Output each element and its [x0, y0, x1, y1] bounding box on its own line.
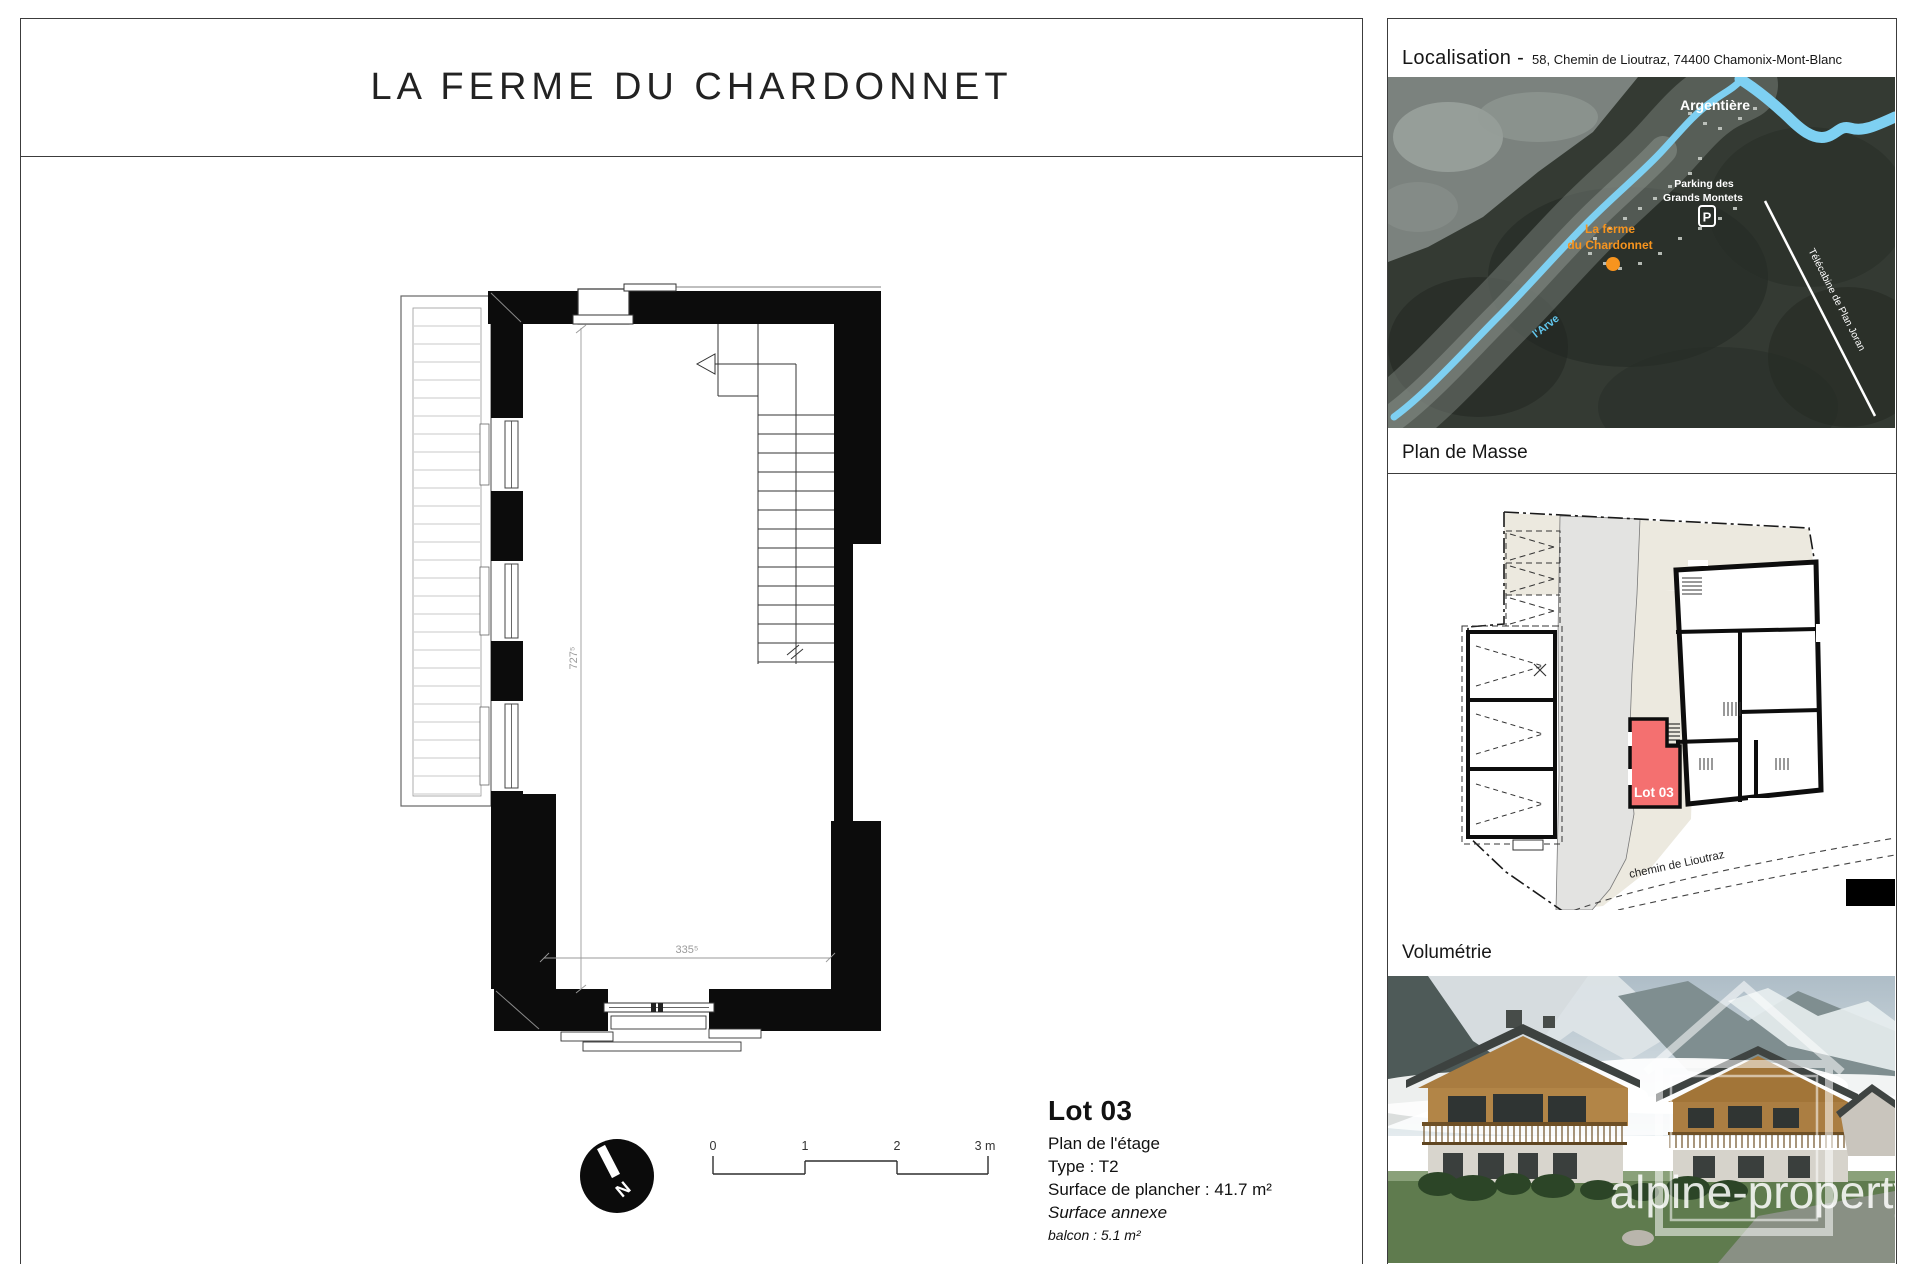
side-column: Localisation - 58, Chemin de Lioutraz, 7… — [1387, 18, 1897, 1264]
north-arrow: N — [578, 1136, 658, 1216]
lot-annexe: Surface annexe — [1048, 1201, 1272, 1224]
lot-info-block: Lot 03 Plan de l'étage Type : T2 Surface… — [1048, 1094, 1272, 1247]
staircase — [697, 324, 834, 664]
site-plan: Lot 03 chemin de Lioutraz — [1388, 474, 1895, 910]
exterior-walls — [488, 291, 881, 1031]
title-block: LA FERME DU CHARDONNET — [20, 18, 1363, 157]
scale-tick-0: 0 — [710, 1139, 717, 1153]
dim-width-label: 335⁵ — [676, 944, 699, 956]
lot-03-label: Lot 03 — [1634, 785, 1674, 800]
map-label-parking-2: Grands Montets — [1663, 192, 1743, 204]
door-gap — [1688, 560, 1708, 566]
stair-direction-arrow — [697, 354, 715, 374]
rock — [1622, 1230, 1654, 1246]
volumetrie-header: Volumétrie — [1388, 910, 1896, 976]
localisation-heading: Localisation - — [1402, 47, 1524, 70]
scale-tick-3: 3 m — [975, 1139, 996, 1153]
localisation-address: 58, Chemin de Lioutraz, 74400 Chamonix-M… — [1532, 52, 1842, 67]
scale-bar: 0 1 2 3 m — [692, 1134, 1012, 1182]
plan-de-masse-heading: Plan de Masse — [1402, 442, 1528, 463]
lot-type: Type : T2 — [1048, 1155, 1272, 1178]
scale-tick-2: 2 — [894, 1139, 901, 1153]
driveway-path — [1556, 516, 1640, 910]
dim-height-label: 727⁵ — [568, 647, 580, 670]
legend-square — [1846, 879, 1895, 906]
carports-lower — [1462, 626, 1562, 850]
localisation-map: Argentière Parking des Grands Montets P … — [1388, 77, 1895, 428]
lot-03-unit: Lot 03 — [1628, 719, 1680, 807]
dimension-lines — [540, 325, 835, 993]
lot-balcony: balcon : 5.1 m² — [1048, 1224, 1272, 1247]
page-title: LA FERME DU CHARDONNET — [370, 66, 1012, 109]
main-building — [1676, 560, 1823, 806]
lot-plan-level: Plan de l'étage — [1048, 1132, 1272, 1155]
site-marker-dot — [1606, 257, 1620, 271]
map-label-town: Argentière — [1680, 97, 1750, 113]
map-label-site-2: du Chardonnet — [1567, 238, 1652, 252]
door-gap — [1748, 798, 1772, 806]
balcony — [401, 296, 491, 806]
lot-number: Lot 03 — [1048, 1094, 1272, 1128]
parking-icon-letter: P — [1703, 210, 1712, 225]
map-label-parking-1: Parking des — [1674, 178, 1734, 190]
volumetrie-photo: alpine-property — [1388, 976, 1895, 1263]
door-gap — [1816, 624, 1823, 642]
map-label-site-1: La ferme — [1585, 222, 1635, 236]
plan-de-masse-header: Plan de Masse — [1388, 428, 1896, 474]
watermark-text: alpine-property — [1610, 1166, 1895, 1218]
scale-tick-1: 1 — [802, 1139, 809, 1153]
localisation-header: Localisation - 58, Chemin de Lioutraz, 7… — [1388, 19, 1896, 77]
windows — [480, 421, 518, 788]
plan-sheet-page: LA FERME DU CHARDONNET — [0, 0, 1920, 1264]
volumetrie-heading: Volumétrie — [1402, 942, 1492, 963]
lot-surface: Surface de plancher : 41.7 m² — [1048, 1178, 1272, 1201]
